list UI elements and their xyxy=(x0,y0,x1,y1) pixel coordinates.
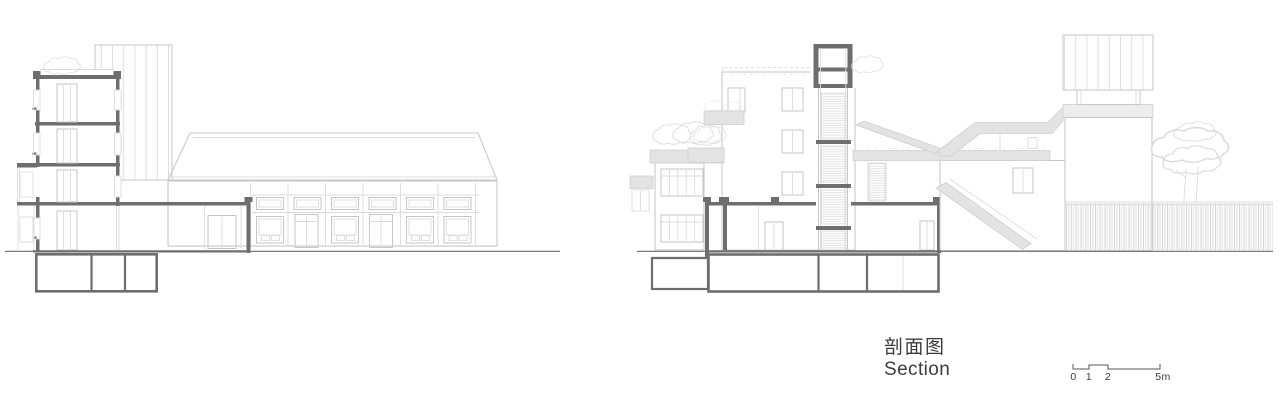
warehouse-upper-windows xyxy=(257,198,472,210)
multipane-window-lower xyxy=(661,215,703,242)
scale-label-0: 0 xyxy=(1070,371,1076,383)
scale-bar-line xyxy=(1072,362,1168,371)
left-building-section xyxy=(5,45,560,291)
warehouse-elevation xyxy=(168,133,497,249)
tower-beam xyxy=(814,44,853,49)
annex-and-walkways xyxy=(852,35,1273,251)
stair-landing xyxy=(816,184,851,188)
scale-label-2: 2 xyxy=(1105,371,1111,383)
rear-wall xyxy=(940,161,1065,251)
balcony-slab xyxy=(688,148,724,163)
balcony-slab xyxy=(630,176,653,189)
stair-landing xyxy=(816,140,851,144)
scale-label-1: 1 xyxy=(1086,371,1092,383)
stair-tower-section xyxy=(811,40,857,252)
stair-landing xyxy=(816,226,851,230)
rear-stair-hatch xyxy=(869,163,885,201)
caption-chinese: 剖面图 xyxy=(884,337,950,359)
cut-wall xyxy=(705,206,709,258)
roof-slab xyxy=(33,75,121,79)
cut-wall xyxy=(723,206,727,251)
floor-slab xyxy=(17,202,250,206)
multipane-window-upper xyxy=(661,169,703,196)
warehouse-lower-windows xyxy=(257,217,472,244)
balcony-slab xyxy=(704,111,744,125)
architectural-section-sheet: 剖面图 Section 0 1 2 5m xyxy=(0,0,1280,413)
basement-left xyxy=(36,254,156,292)
drawing-caption: 剖面图 Section xyxy=(884,337,950,380)
basement-right xyxy=(652,254,939,292)
tower-post xyxy=(814,44,819,88)
floor-slab xyxy=(35,122,120,126)
terrace-shrubs-icon xyxy=(653,122,727,145)
tower-parapet xyxy=(1063,105,1153,118)
scale-bar: 0 1 2 5m xyxy=(1072,362,1172,388)
section-drawings-canvas xyxy=(0,0,1280,413)
caption-english: Section xyxy=(884,359,950,380)
tower-beam xyxy=(814,68,853,72)
facade-windows xyxy=(782,88,803,195)
right-building-section xyxy=(630,35,1273,292)
scale-label-5m: 5m xyxy=(1155,371,1171,383)
upper-walkway-ramp xyxy=(938,109,1063,157)
slatted-fence xyxy=(1065,202,1273,251)
warehouse-bay-dividers xyxy=(251,183,480,246)
rooftop-box xyxy=(1063,35,1153,90)
tree-icon xyxy=(1152,122,1229,202)
terraced-block-elevation xyxy=(630,122,726,250)
tower-beam xyxy=(814,84,853,88)
